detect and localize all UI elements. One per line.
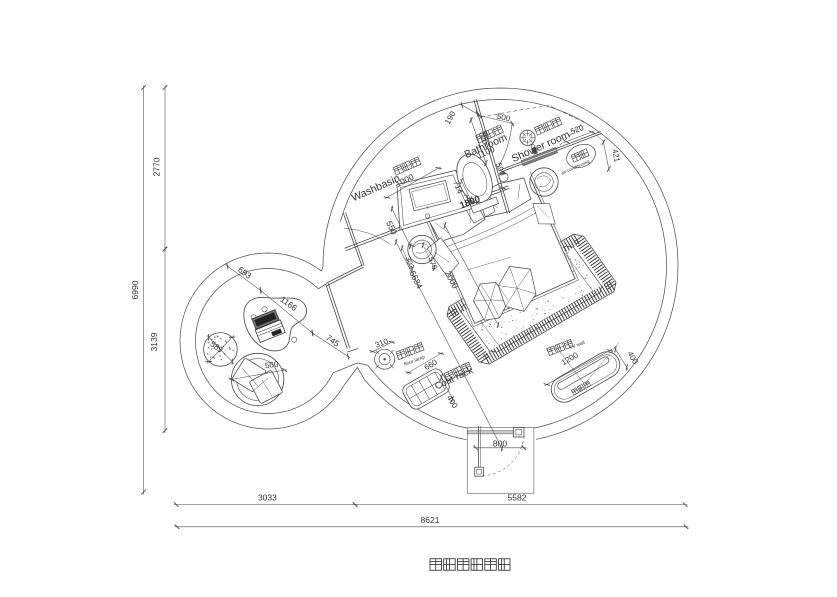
svg-text:500: 500 xyxy=(264,360,279,371)
svg-text:3139: 3139 xyxy=(149,332,159,351)
svg-text:3033: 3033 xyxy=(258,493,277,503)
svg-text:8621: 8621 xyxy=(421,515,440,525)
svg-text:2770: 2770 xyxy=(152,157,162,176)
svg-text:6990: 6990 xyxy=(130,280,140,299)
svg-text:5582: 5582 xyxy=(508,493,527,503)
svg-text:800: 800 xyxy=(493,438,507,448)
